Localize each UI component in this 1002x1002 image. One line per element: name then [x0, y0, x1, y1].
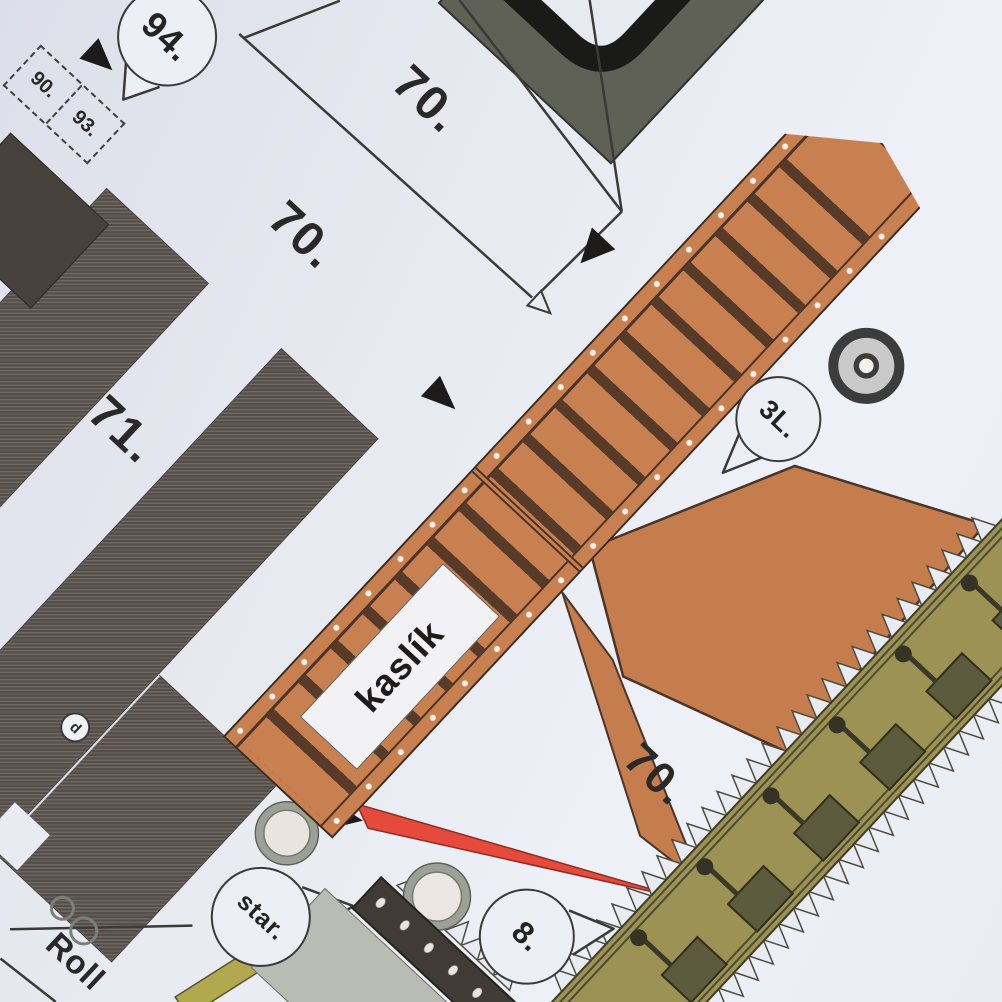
hollow-arrow-icon — [527, 291, 557, 321]
part-number: 90. — [25, 67, 61, 103]
arrow-icon — [79, 38, 121, 80]
small-ring-icon — [47, 893, 78, 924]
detail-mark: d — [66, 718, 84, 737]
part-number: 93. — [67, 106, 103, 142]
grommet-wheel — [820, 319, 913, 412]
callout-number: 3L. — [752, 393, 804, 444]
elbow-channel-part — [439, 0, 807, 163]
papercraft-sheet-photo: kaslík 90. 93. 70. 70. 71. 70. Roll 94. … — [0, 0, 1002, 1002]
arrow-icon — [569, 228, 616, 275]
track-block — [991, 581, 1002, 649]
arrow-icon — [421, 376, 465, 420]
callout-number: 94. — [133, 3, 200, 70]
rotated-sheet-grid: kaslík 90. 93. 70. 70. 71. 70. Roll 94. … — [0, 0, 1002, 1002]
callout-number: 8. — [504, 914, 549, 959]
callout-number: star. — [230, 887, 291, 947]
